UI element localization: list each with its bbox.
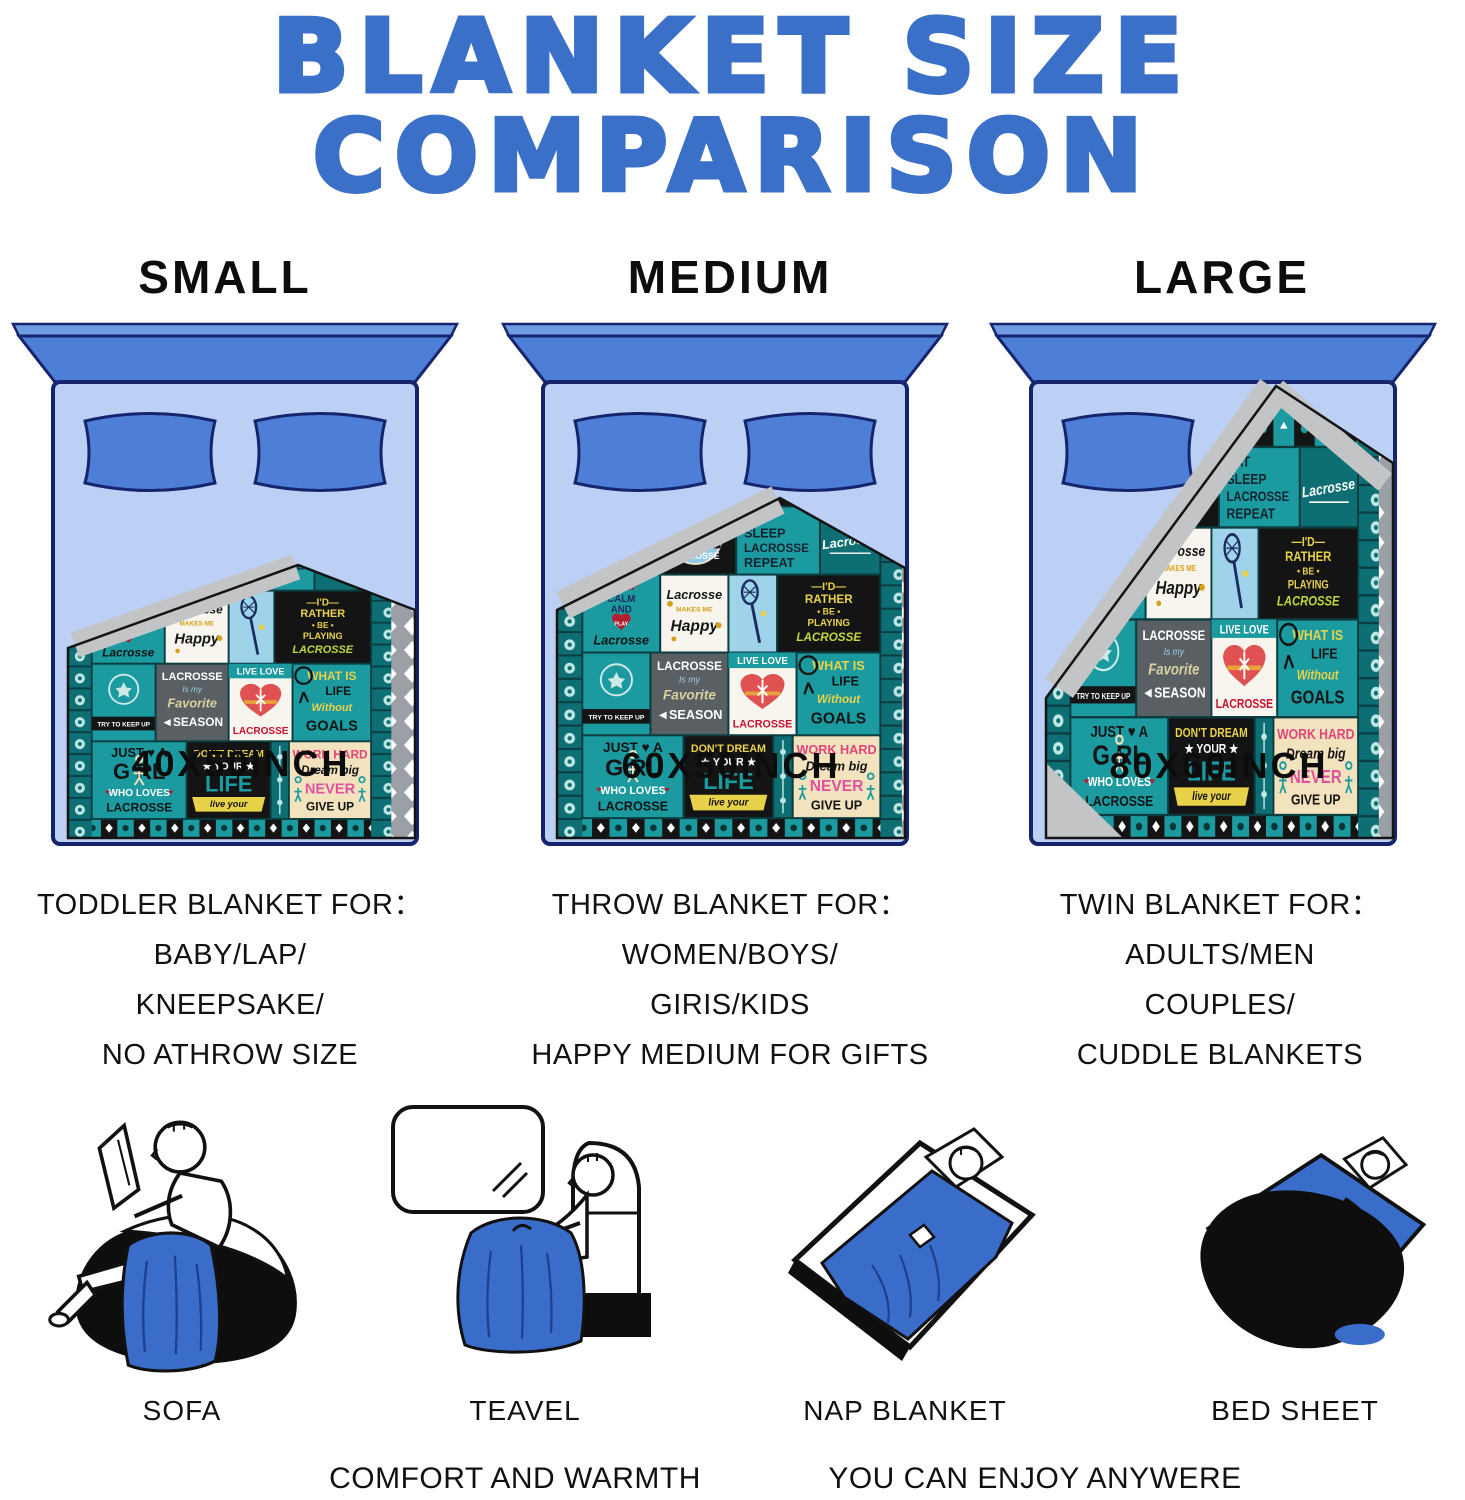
desc-small: TODDLER BLANKET FOR： BABY/LAP/ KNEEPSAKE…	[0, 880, 460, 1080]
usage-label-bedsheet: BED SHEET	[1135, 1395, 1455, 1427]
usage-illustration-nap	[755, 1095, 1065, 1375]
foot	[50, 1314, 69, 1326]
footer-enjoy: YOU CAN ENJOY ANYWERE	[775, 1462, 1295, 1496]
footer-comfort: COMFORT AND WARMTH	[255, 1462, 775, 1496]
head	[155, 1122, 205, 1172]
infographic-canvas: LACROSSE EVERY DAY IS A GOOD DAY TO PLAY…	[0, 0, 1465, 1500]
desc-line: CUDDLE BLANKETS	[990, 1030, 1450, 1080]
pillow-right	[745, 414, 875, 491]
bed-illustration-large: 80X60INCH	[983, 318, 1443, 858]
blanket	[122, 1233, 220, 1371]
desc-line: COUPLES/	[990, 980, 1450, 1030]
desc-medium: THROW BLANKET FOR： WOMEN/BOYS/ GIRIS/KID…	[500, 880, 960, 1080]
desc-line: TWIN BLANKET FOR：	[990, 880, 1450, 930]
desc-line: KNEEPSAKE/	[0, 980, 460, 1030]
headboard-top	[13, 324, 457, 336]
usage-label-nap: NAP BLANKET	[745, 1395, 1065, 1427]
usage-label-travel: TEAVEL	[365, 1395, 685, 1427]
desc-large: TWIN BLANKET FOR： ADULTS/MEN COUPLES/ CU…	[990, 880, 1450, 1080]
desc-line: GIRIS/KIDS	[500, 980, 960, 1030]
page-title-line1: BLANKET SIZE	[0, 6, 1465, 108]
pillow-left	[575, 414, 705, 491]
desc-line: WOMEN/BOYS/	[500, 930, 960, 980]
window	[393, 1107, 543, 1212]
bed-illustration-medium: 60X50INCH	[495, 318, 955, 858]
head	[950, 1147, 982, 1179]
blanket-size-label-medium: 60X50INCH	[621, 745, 840, 786]
page-title-line2: COMPARISON	[0, 108, 1465, 208]
head	[1362, 1151, 1389, 1178]
blanket	[458, 1218, 584, 1352]
headboard	[19, 336, 451, 382]
desc-line: THROW BLANKET FOR：	[500, 880, 960, 930]
pillow-right	[255, 414, 385, 491]
bed-illustration-small: 40X50INCH	[5, 318, 465, 858]
headboard-top	[991, 324, 1435, 336]
desc-line: NO ATHROW SIZE	[0, 1030, 460, 1080]
page-title: BLANKET SIZE COMPARISON	[0, 6, 1465, 208]
pillow-left	[1063, 414, 1193, 491]
size-header-small: SMALL	[5, 250, 445, 304]
usage-illustration-travel	[375, 1090, 675, 1380]
usage-label-sofa: SOFA	[22, 1395, 342, 1427]
desc-line: ADULTS/MEN	[990, 930, 1450, 980]
desc-line: HAPPY MEDIUM FOR GIFTS	[500, 1030, 960, 1080]
usage-illustration-sofa	[25, 1090, 335, 1380]
headboard	[509, 336, 941, 382]
head	[573, 1155, 613, 1195]
size-header-large: LARGE	[1002, 250, 1442, 304]
desc-line: TODDLER BLANKET FOR：	[0, 880, 460, 930]
blanket-size-label-large: 80X60INCH	[1109, 745, 1328, 786]
headboard	[997, 336, 1429, 382]
size-header-medium: MEDIUM	[510, 250, 950, 304]
blanket-size-label-small: 40X50INCH	[131, 743, 350, 784]
usage-illustration-bedsheet	[1145, 1105, 1455, 1375]
headboard-top	[503, 324, 947, 336]
desc-line: BABY/LAP/	[0, 930, 460, 980]
pillow-left	[85, 414, 215, 491]
sheet-peek	[1335, 1324, 1385, 1345]
